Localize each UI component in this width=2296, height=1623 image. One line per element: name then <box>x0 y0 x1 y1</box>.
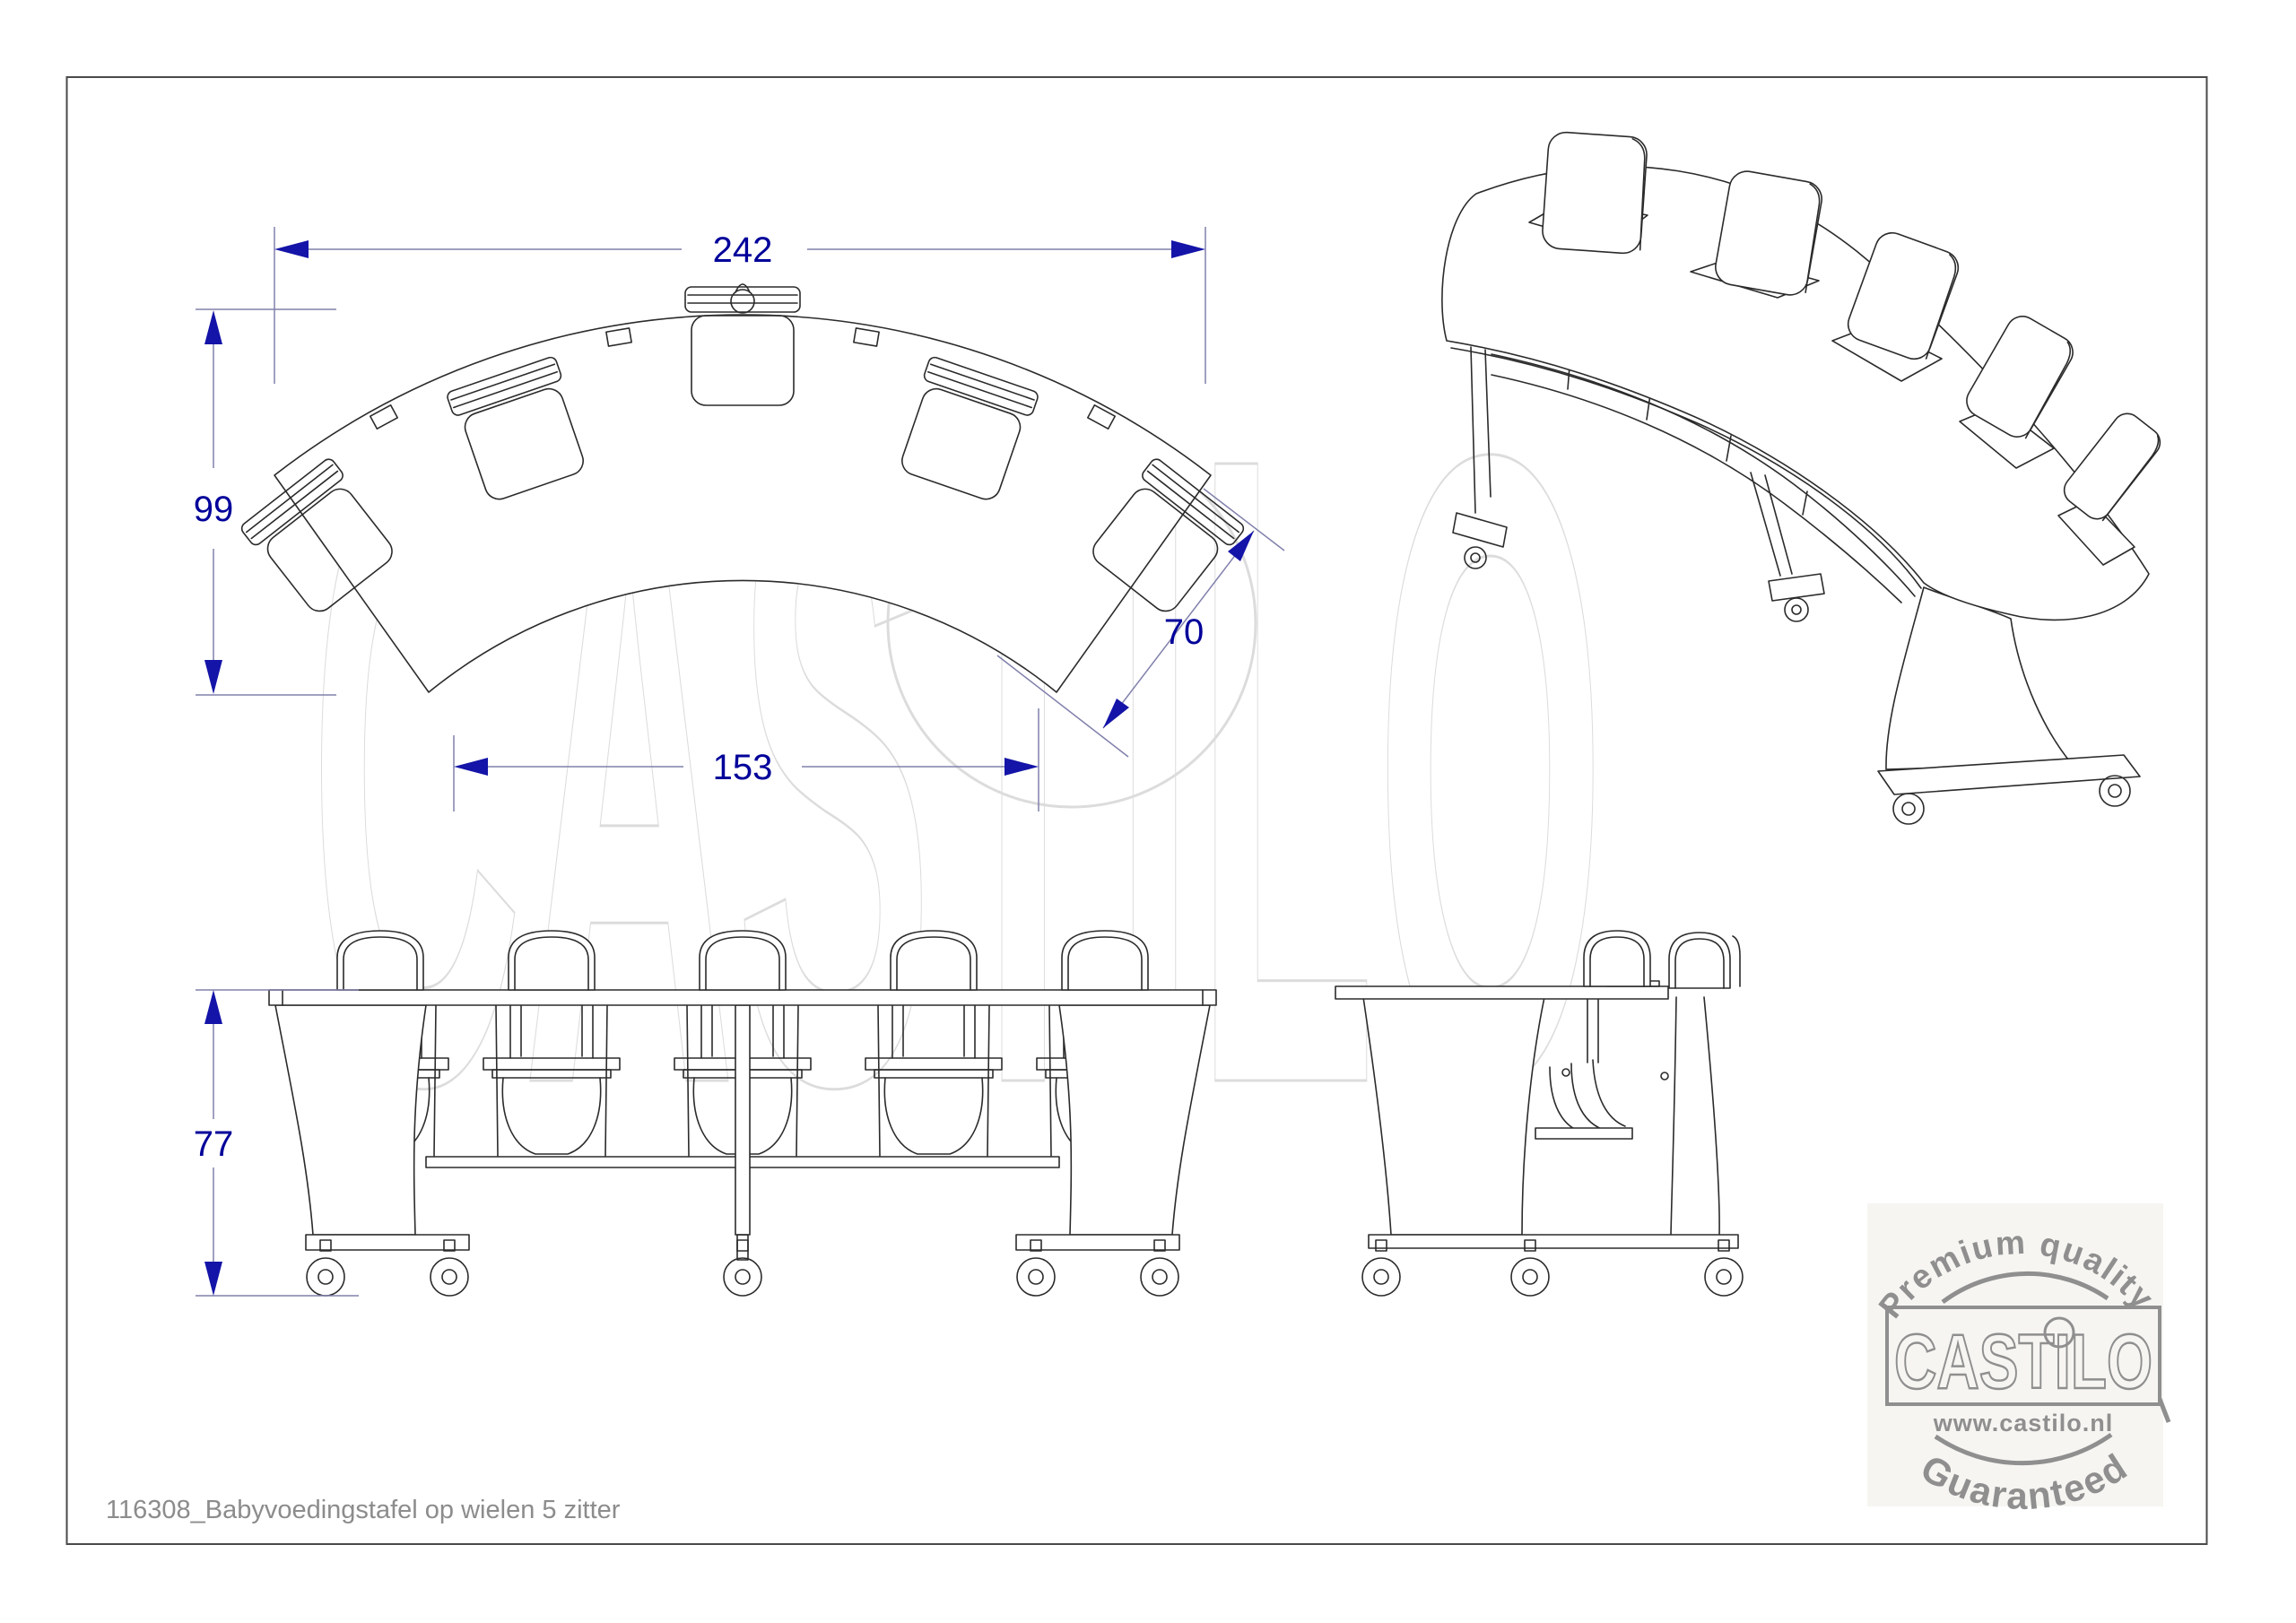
dim-overall-depth-label: 99 <box>194 490 234 529</box>
dim-inner-width-label: 153 <box>713 748 773 787</box>
stamp-website: www.castilo.nl <box>1933 1410 2114 1436</box>
dim-height-label: 77 <box>194 1124 234 1164</box>
castilo-logo-stamp: Premium quality CASTILO www.castilo.nl G… <box>1867 1203 2169 1517</box>
drawing-caption: 116308_Babyvoedingstafel op wielen 5 zit… <box>106 1496 621 1524</box>
stamp-brand-text: CASTILO <box>1894 1319 2152 1405</box>
drawing-canvas: CASTILO <box>0 0 2296 1623</box>
dim-top-depth-label: 70 <box>1164 612 1205 652</box>
dim-overall-width-label: 242 <box>713 230 773 270</box>
